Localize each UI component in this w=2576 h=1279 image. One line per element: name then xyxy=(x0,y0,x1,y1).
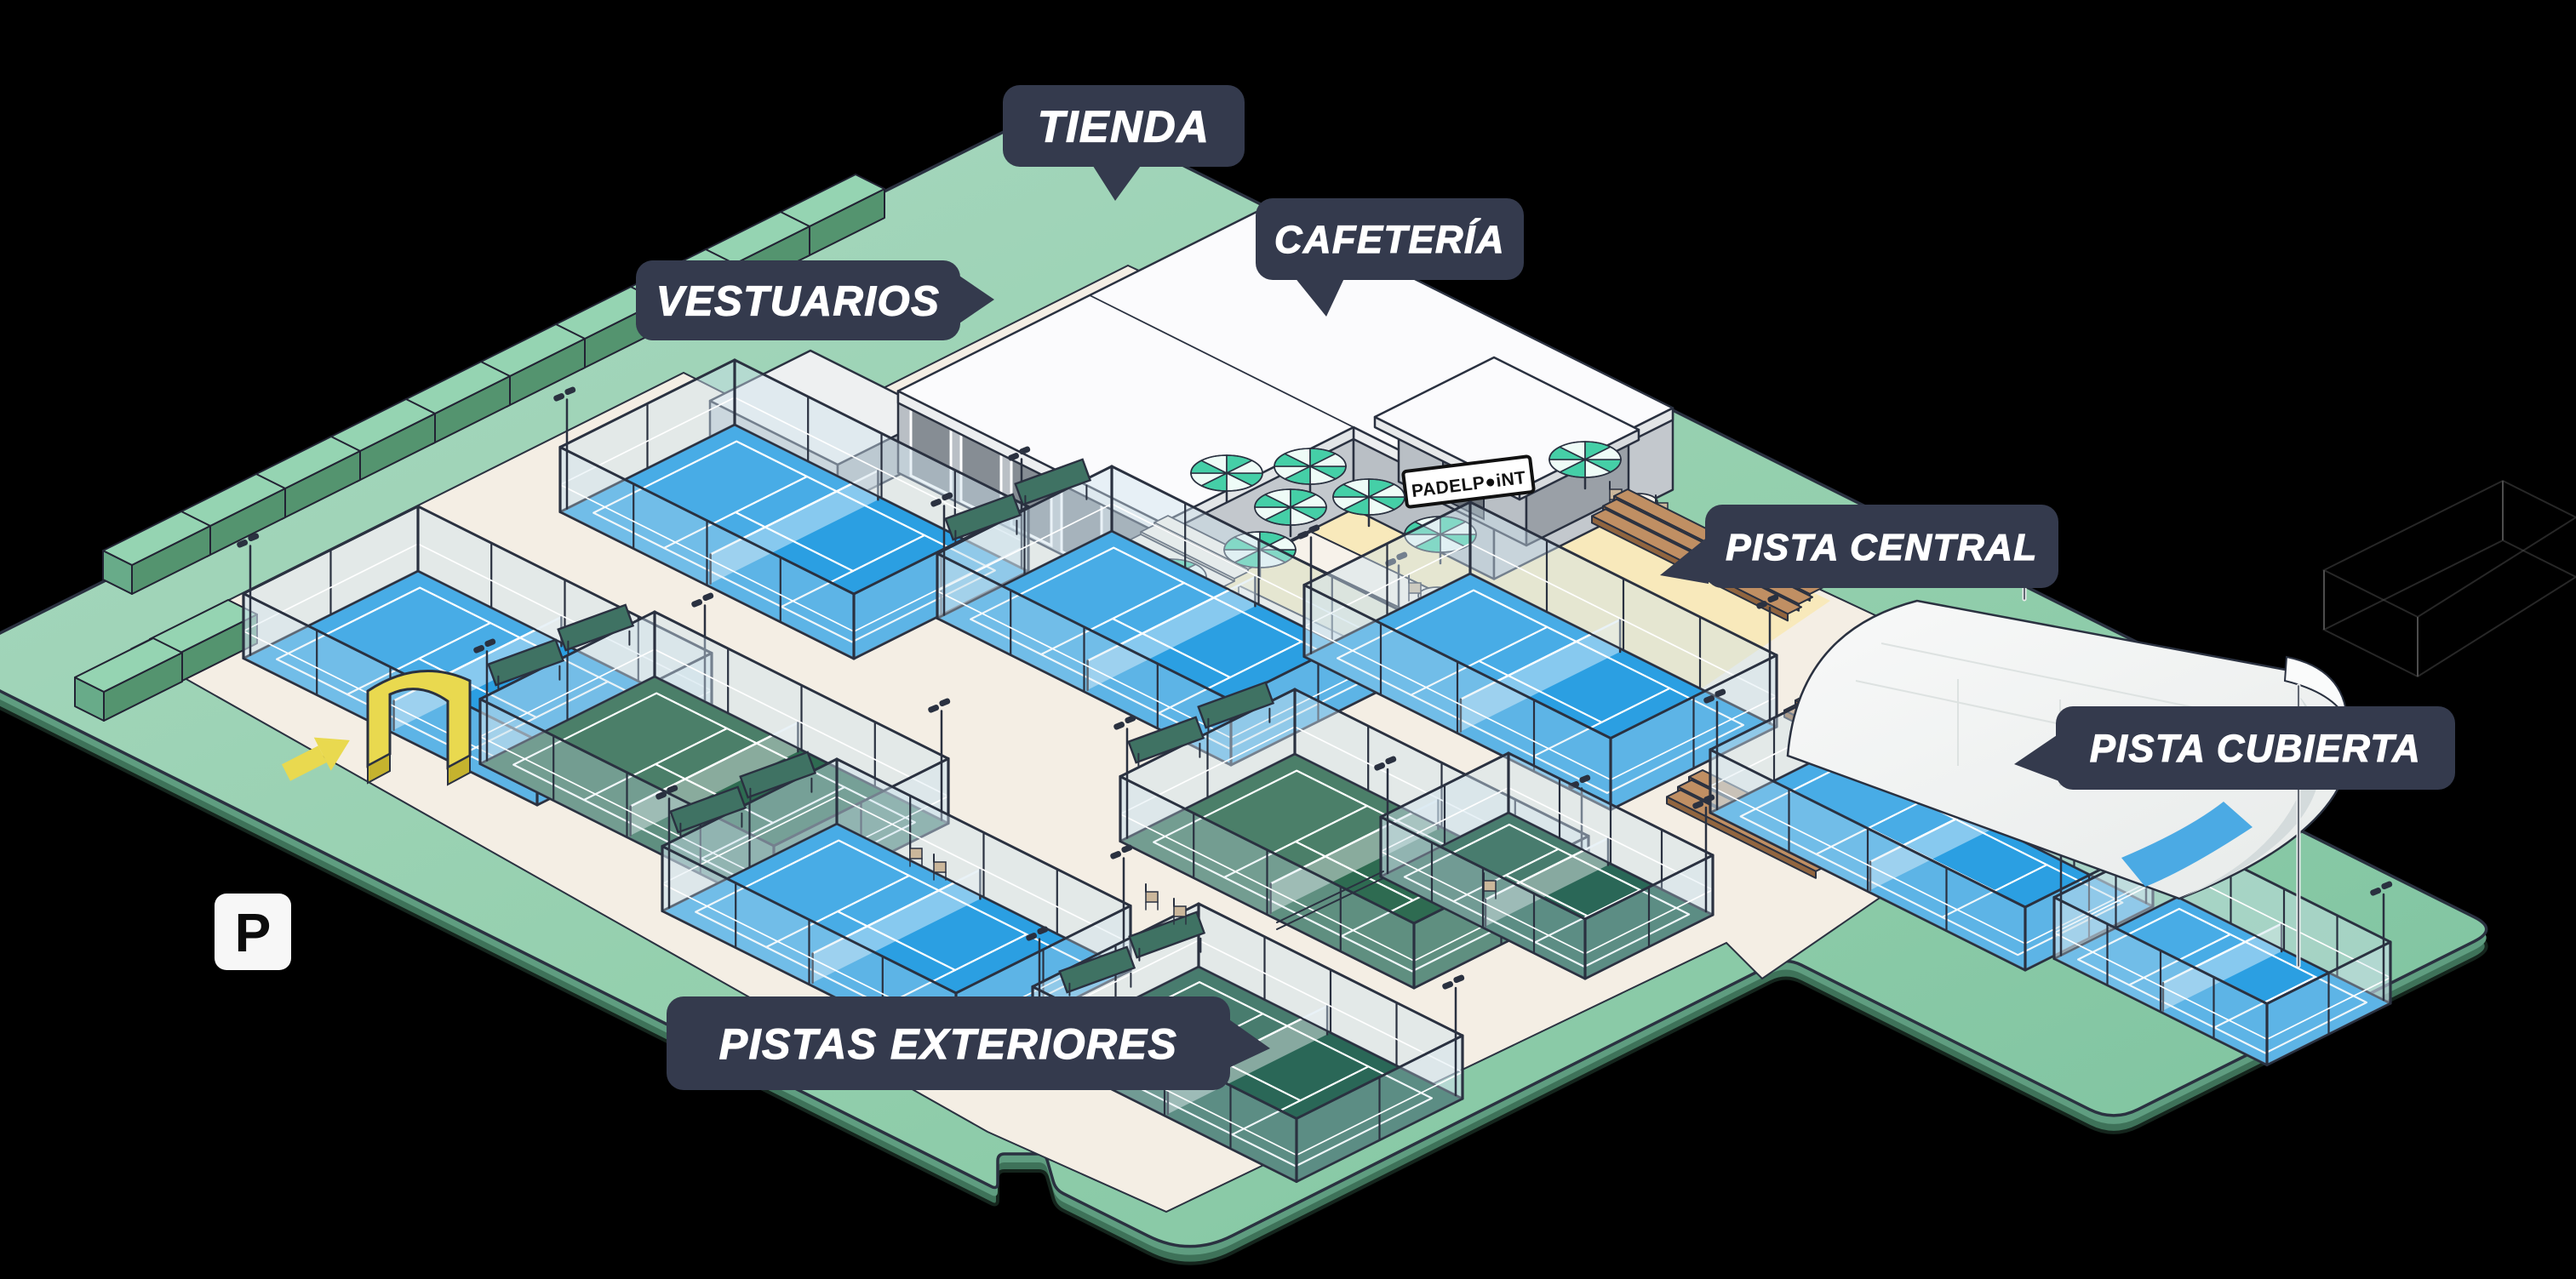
svg-text:CAFETERÍA: CAFETERÍA xyxy=(1274,218,1505,261)
svg-text:PISTA CUBIERTA: PISTA CUBIERTA xyxy=(2090,727,2421,770)
svg-text:VESTUARIOS: VESTUARIOS xyxy=(656,279,941,325)
svg-text:TIENDA: TIENDA xyxy=(1038,103,1211,152)
svg-text:P: P xyxy=(235,902,272,963)
svg-text:PISTA CENTRAL: PISTA CENTRAL xyxy=(1726,527,2038,568)
svg-text:PISTAS EXTERIORES: PISTAS EXTERIORES xyxy=(719,1020,1178,1068)
